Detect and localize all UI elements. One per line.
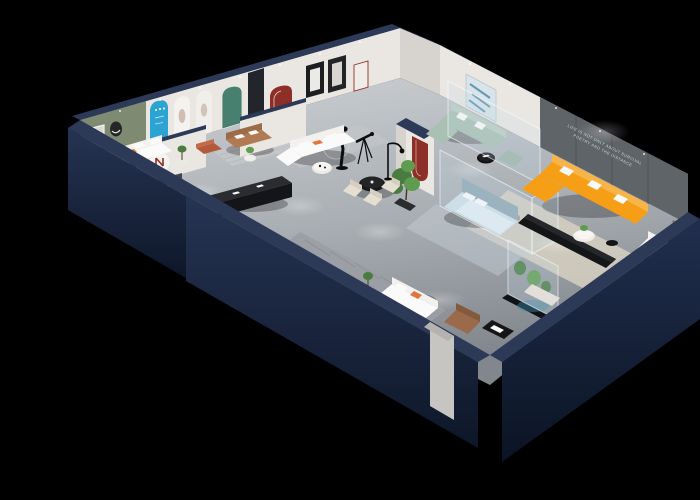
poster-figure-1: [179, 109, 186, 123]
art-frame-black-1-mat: [310, 67, 320, 92]
floorplan-svg: LIFE IS NOT ONLY ABOUT SURVIVAL POETRY A…: [0, 0, 700, 500]
door-teal-arch: [222, 86, 242, 129]
decor-tray-black: [606, 240, 618, 246]
poster-figure-2: [201, 104, 207, 117]
art-frame-black-2-mat: [332, 61, 342, 87]
door-white-red-trim: [354, 61, 368, 91]
showroom-render: LIFE IS NOT ONLY ABOUT SURVIVAL POETRY A…: [0, 0, 700, 500]
art-round-black: [110, 122, 122, 137]
